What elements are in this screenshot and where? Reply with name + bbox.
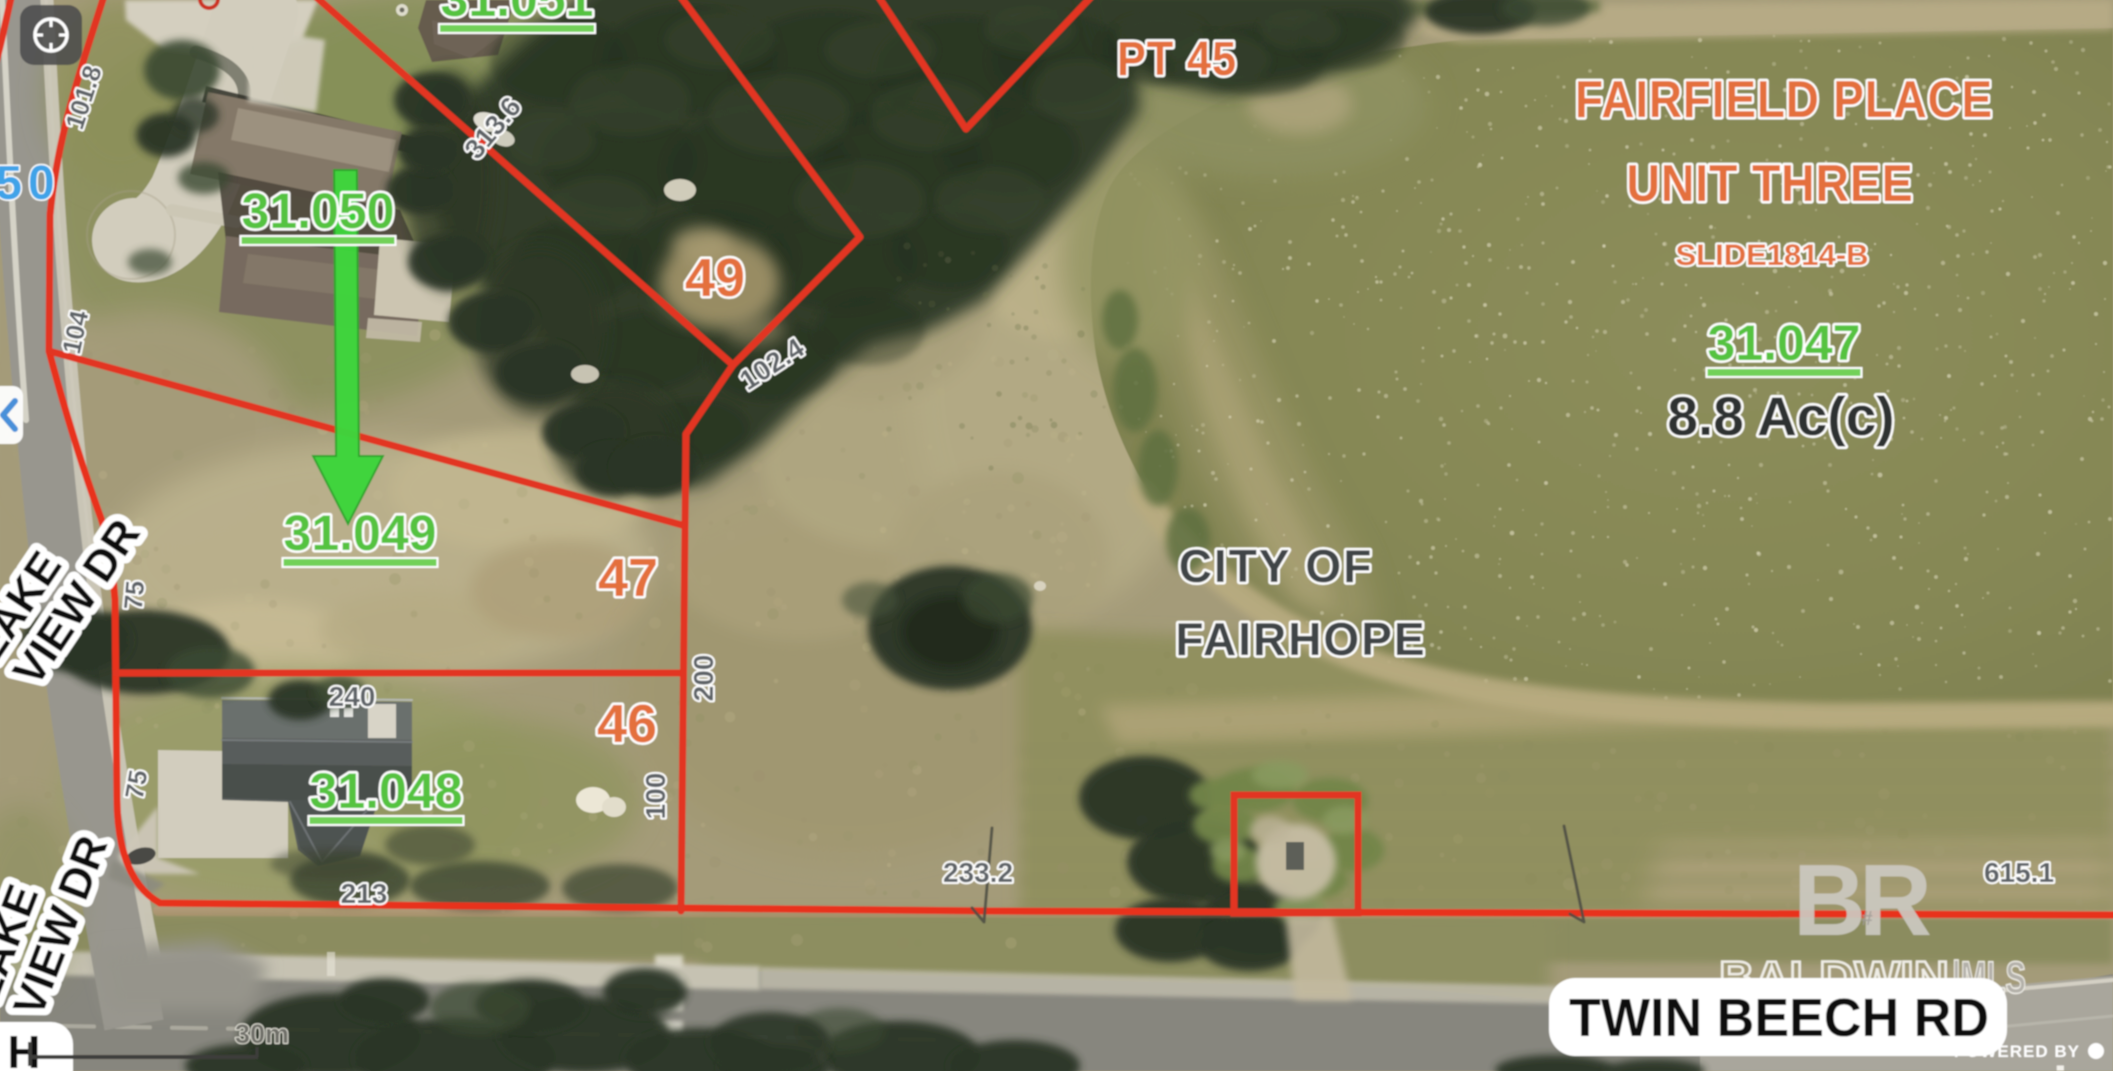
svg-text:233.2: 233.2 [943, 857, 1013, 888]
svg-text:FAIRHOPE: FAIRHOPE [1175, 613, 1426, 665]
svg-text:TWIN BEECH RD: TWIN BEECH RD [1569, 988, 1989, 1048]
svg-text:FAIRFIELD PLACE: FAIRFIELD PLACE [1575, 71, 1993, 129]
svg-text:esri: esri [1975, 1057, 2068, 1071]
svg-text:PT 45: PT 45 [1117, 33, 1237, 86]
svg-text:46: 46 [597, 694, 657, 754]
svg-text:SLIDE1814-B: SLIDE1814-B [1676, 239, 1869, 272]
svg-text:75: 75 [119, 768, 154, 802]
svg-text:CITY OF: CITY OF [1179, 540, 1374, 592]
svg-text:213: 213 [341, 878, 388, 909]
svg-text:47: 47 [598, 548, 658, 608]
svg-text:31.051: 31.051 [441, 0, 594, 27]
svg-text:50: 50 [0, 157, 61, 210]
svg-text:UNIT THREE: UNIT THREE [1627, 155, 1914, 213]
svg-text:#: # [1861, 908, 1872, 930]
svg-text:H: H [7, 1026, 40, 1071]
svg-text:240: 240 [329, 681, 376, 712]
svg-text:BR: BR [1793, 845, 1930, 957]
svg-text:8.8 Ac(c): 8.8 Ac(c) [1667, 385, 1894, 447]
svg-text:615.1: 615.1 [1984, 857, 2054, 888]
svg-text:75: 75 [118, 580, 150, 611]
svg-text:100: 100 [640, 773, 671, 820]
svg-text:31.050: 31.050 [242, 183, 395, 239]
svg-text:31.049: 31.049 [284, 505, 437, 561]
svg-text:30m: 30m [235, 1019, 289, 1049]
svg-text:31.048: 31.048 [310, 763, 463, 819]
svg-text:49: 49 [685, 248, 745, 308]
svg-text:31.047: 31.047 [1708, 315, 1861, 371]
svg-text:200: 200 [688, 655, 719, 702]
